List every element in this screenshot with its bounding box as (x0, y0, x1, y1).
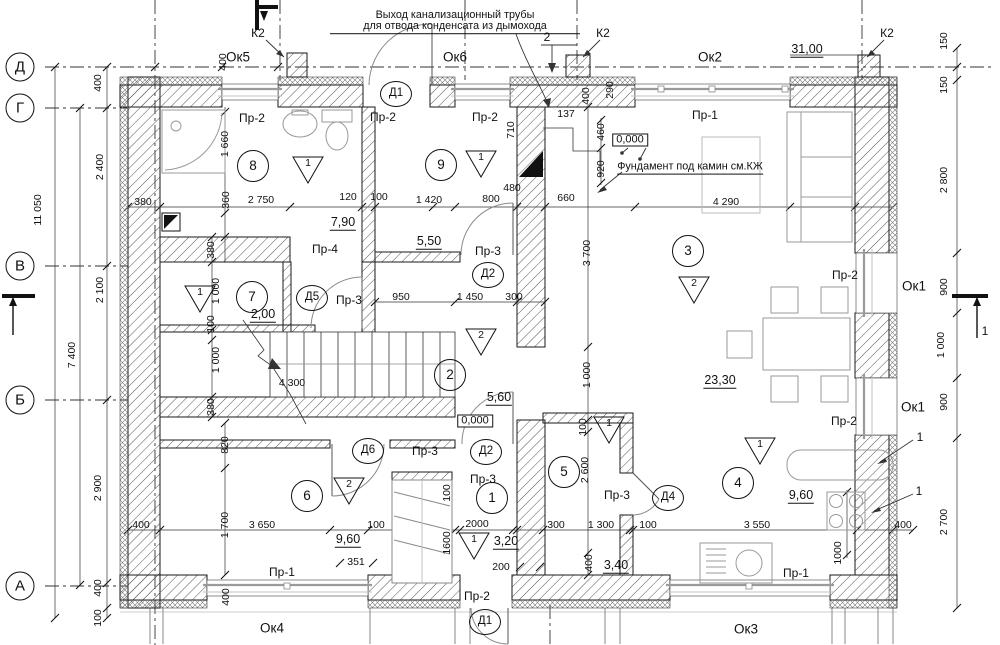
dimension-value: 400 (93, 74, 104, 92)
floor-type-mark: 1 (457, 531, 491, 561)
floor-type-mark: 2 (677, 275, 711, 305)
dimension-value: 2 800 (939, 167, 950, 193)
pipe-annotation: Выход канализационный трубы для отвода к… (330, 10, 580, 34)
dimension-value: 2 400 (95, 154, 106, 180)
door-tag: Д4 (652, 485, 684, 511)
dimension-value: 7 400 (67, 342, 78, 368)
dimension-value: 11 050 (33, 194, 44, 225)
dimension-value: 2000 (465, 519, 488, 530)
dimension-value: 920 (596, 160, 607, 178)
window-label: Ок1 (902, 279, 926, 293)
dimension-value: 100 (578, 418, 589, 436)
fireplace-note: Фундамент под камин см.КЖ (617, 162, 763, 175)
dimension-value: 950 (392, 292, 410, 303)
floor-type-mark: 1 (592, 415, 626, 445)
room-area-value: 3,20 (493, 535, 519, 550)
dimension-value: 2 750 (248, 195, 274, 206)
axis-row-label: Д (6, 53, 35, 82)
floor-type-number: 1 (457, 534, 491, 545)
dimension-value: 2 100 (95, 277, 106, 303)
lintel-label: Пр-3 (604, 489, 630, 501)
dimension-value: 1 300 (588, 520, 614, 531)
callout-label: 1 (916, 485, 923, 497)
room-area-value: 5,50 (416, 235, 442, 250)
window-label: Ок6 (443, 50, 467, 64)
lintel-label: Пр-1 (692, 109, 718, 121)
callout-label: К2 (880, 27, 894, 39)
callout-label: К2 (251, 27, 265, 39)
lintel-label: Пр-2 (472, 111, 498, 123)
lintel-label: Пр-1 (783, 567, 809, 579)
dimension-value: 1 420 (416, 195, 442, 206)
floor-type-number: 1 (183, 287, 217, 298)
lintel-label: Пр-2 (370, 111, 396, 123)
room-number: 3 (672, 235, 704, 267)
dimension-value: 300 (547, 520, 565, 531)
room-area-value: 7,90 (330, 216, 356, 231)
door-tag: Д1 (469, 609, 501, 635)
window-label: Ок1 (901, 400, 925, 414)
room-number: 1 (476, 482, 508, 514)
dimension-value: 1600 (442, 531, 453, 554)
dimension-value: 100 (206, 315, 217, 333)
window-label: Ок2 (698, 50, 722, 64)
lintel-label: Пр-3 (412, 445, 438, 457)
floor-type-number: 1 (592, 418, 626, 429)
dimension-value: 900 (939, 278, 950, 296)
callout-label: 1 (917, 431, 924, 443)
dimension-value: 1 660 (220, 131, 231, 157)
callout-label: К2 (596, 27, 610, 39)
room-number: 8 (237, 150, 269, 182)
room-number: 5 (548, 456, 580, 488)
dimension-value: 400 (894, 520, 912, 531)
floor-plan-page: Выход канализационный трубы для отвода к… (0, 0, 1000, 645)
dimension-value: 290 (605, 81, 616, 99)
dimension-value: 380 (206, 241, 217, 259)
dimension-value: 300 (505, 292, 523, 303)
lintel-label: Пр-1 (269, 566, 295, 578)
axis-row-label: Б (6, 386, 35, 415)
dimension-value: 1 000 (211, 347, 222, 373)
elevation-mark: 0,000 (457, 415, 493, 428)
callout-label: 1 (982, 325, 989, 337)
window-label: Ок5 (226, 50, 250, 64)
dimension-value: 380 (134, 197, 152, 208)
lintel-label: Пр-2 (831, 415, 857, 427)
dimension-value: 2 900 (93, 475, 104, 501)
dimension-value: 150 (939, 32, 950, 50)
dimension-value: 400 (221, 588, 232, 606)
floor-type-number: 2 (332, 479, 366, 490)
dimension-value: 1 450 (457, 292, 483, 303)
lintel-label: Пр-4 (312, 243, 338, 255)
floor-type-number: 1 (291, 158, 325, 169)
room-area-value: 9,60 (335, 533, 361, 548)
lintel-label: Пр-3 (475, 245, 501, 257)
lintel-label: Пр-2 (464, 590, 490, 602)
dimension-value: 100 (93, 609, 104, 627)
door-tag: Д2 (472, 262, 504, 288)
dimension-value: 351 (347, 557, 365, 568)
door-tag: Д6 (352, 438, 384, 464)
floor-type-mark: 1 (291, 155, 325, 185)
dimension-value: 400 (218, 53, 229, 71)
dimension-value: 480 (503, 183, 521, 194)
elevation-mark: 0,000 (612, 134, 648, 147)
dimension-value: 2 600 (580, 457, 591, 483)
room-area-value: 9,60 (788, 489, 814, 504)
room-area-value: 31,00 (790, 43, 823, 58)
lintel-label: Пр-3 (336, 294, 362, 306)
dimension-value: 460 (596, 123, 607, 141)
door-tag: Д2 (470, 439, 502, 465)
floor-type-mark: 1 (743, 436, 777, 466)
labels-layer: Выход канализационный трубы для отвода к… (0, 0, 1000, 645)
room-number: 9 (425, 149, 457, 181)
dimension-value: 3 550 (744, 520, 770, 531)
door-tag: Д5 (296, 285, 328, 311)
dimension-value: 2 700 (939, 509, 950, 535)
dimension-value: 150 (939, 76, 950, 94)
dimension-value: 3 650 (249, 520, 275, 531)
dimension-value: 710 (506, 121, 517, 139)
floor-type-mark: 1 (183, 284, 217, 314)
dimension-value: 400 (93, 579, 104, 597)
room-area-value: 5,60 (486, 391, 512, 406)
dimension-value: 820 (220, 436, 231, 454)
dimension-value: 900 (939, 393, 950, 411)
room-area-value: 3,40 (603, 559, 629, 574)
floor-type-mark: 1 (464, 149, 498, 179)
dimension-value: 1000 (833, 541, 844, 564)
dimension-value: 1 700 (220, 512, 231, 538)
axis-row-label: Г (6, 94, 35, 123)
lintel-label: Пр-2 (832, 269, 858, 281)
door-tag: Д1 (380, 81, 412, 107)
room-number: 4 (722, 467, 754, 499)
lintel-label: Пр-2 (239, 112, 265, 124)
dimension-value: 137 (557, 109, 575, 120)
floor-type-number: 2 (677, 278, 711, 289)
dimension-value: 4 300 (279, 378, 305, 389)
dimension-value: 380 (206, 398, 217, 416)
floor-type-number: 2 (464, 330, 498, 341)
dimension-value: 360 (221, 191, 232, 209)
floor-type-number: 1 (743, 439, 777, 450)
dimension-value: 100 (639, 520, 657, 531)
dimension-value: 400 (132, 520, 150, 531)
window-label: Ок4 (260, 621, 284, 635)
dimension-value: 100 (367, 520, 385, 531)
dimension-value: 1 000 (582, 362, 593, 388)
dimension-value: 200 (492, 562, 510, 573)
dimension-value: 1 000 (936, 332, 947, 358)
axis-row-label: В (6, 252, 35, 281)
dimension-value: 660 (557, 193, 575, 204)
dimension-value: 4 290 (713, 197, 739, 208)
room-number: 6 (291, 480, 323, 512)
floor-type-mark: 2 (464, 327, 498, 357)
dimension-value: 400 (581, 87, 592, 105)
axis-row-label: А (6, 572, 35, 601)
room-area-value: 23,30 (703, 374, 736, 389)
dimension-value: 800 (482, 194, 500, 205)
dimension-value: 100 (370, 192, 388, 203)
room-number: 2 (434, 359, 466, 391)
room-number: 7 (236, 281, 268, 313)
dimension-value: 400 (584, 554, 595, 572)
window-label: Ок3 (734, 622, 758, 636)
callout-label: 2 (544, 31, 551, 43)
dimension-value: 120 (339, 192, 357, 203)
floor-type-number: 1 (464, 152, 498, 163)
pipe-annotation-line2: для отвода конденсата из дымохода (330, 21, 580, 34)
floor-type-mark: 2 (332, 476, 366, 506)
dimension-value: 3 700 (582, 240, 593, 266)
dimension-value: 100 (442, 484, 453, 502)
